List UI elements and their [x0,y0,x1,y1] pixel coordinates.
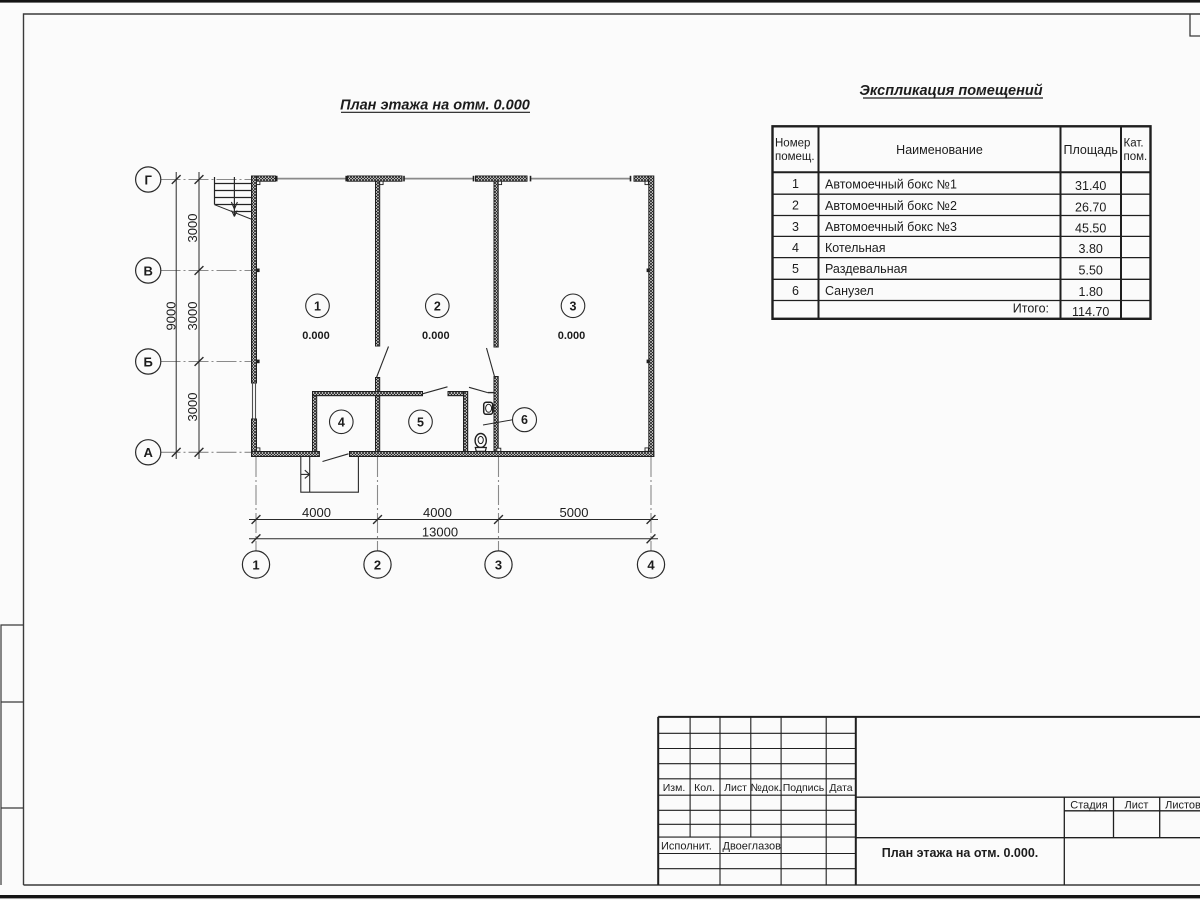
svg-text:0.000: 0.000 [302,330,330,342]
svg-text:Двоеглазов: Двоеглазов [723,841,782,853]
svg-text:Итого:: Итого: [1013,302,1049,316]
svg-text:9000: 9000 [164,302,179,331]
svg-text:6: 6 [792,284,799,298]
svg-text:3000: 3000 [185,302,200,331]
svg-text:4: 4 [647,557,655,572]
svg-text:1: 1 [792,177,799,191]
svg-text:Кол.: Кол. [694,782,715,794]
svg-text:пом.: пом. [1124,151,1148,163]
svg-text:3: 3 [792,220,799,234]
svg-text:45.50: 45.50 [1075,222,1106,236]
svg-text:5: 5 [417,415,424,429]
svg-text:26.70: 26.70 [1075,201,1106,215]
svg-text:5.50: 5.50 [1079,264,1103,278]
svg-text:0.000: 0.000 [422,330,450,342]
svg-text:А: А [144,445,154,460]
svg-text:В: В [144,263,153,278]
svg-text:Раздевальная: Раздевальная [825,262,907,276]
svg-text:31.40: 31.40 [1075,179,1106,193]
svg-text:Наименование: Наименование [896,143,983,157]
svg-text:5: 5 [792,262,799,276]
svg-text:Автомоечный бокс №3: Автомоечный бокс №3 [825,220,957,234]
svg-text:Площадь: Площадь [1063,143,1117,157]
svg-text:0.000: 0.000 [558,330,586,342]
svg-text:2: 2 [792,199,799,213]
svg-text:3.80: 3.80 [1079,242,1103,256]
svg-text:Кат.: Кат. [1124,138,1144,150]
svg-text:Листов: Листов [1165,800,1200,812]
svg-text:4: 4 [338,415,345,429]
svg-text:5000: 5000 [560,505,589,520]
svg-text:Б: Б [144,354,153,369]
svg-text:3000: 3000 [185,393,200,422]
svg-text:План этажа на отм. 0.000.: План этажа на отм. 0.000. [882,846,1039,860]
svg-text:Лист: Лист [1125,800,1149,812]
svg-text:1.80: 1.80 [1079,285,1103,299]
svg-text:Стадия: Стадия [1070,800,1108,812]
svg-text:4000: 4000 [302,505,331,520]
svg-text:Котельная: Котельная [825,241,886,255]
svg-text:Дата: Дата [829,782,852,794]
svg-text:помещ.: помещ. [775,151,815,163]
svg-text:6: 6 [521,413,528,427]
svg-text:4000: 4000 [423,505,452,520]
svg-text:3: 3 [570,299,577,313]
svg-text:Автомоечный бокс №2: Автомоечный бокс №2 [825,199,957,213]
svg-text:Автомоечный бокс №1: Автомоечный бокс №1 [825,178,957,192]
svg-text:2: 2 [434,299,441,313]
svg-text:114.70: 114.70 [1072,305,1109,319]
svg-text:1: 1 [314,299,321,313]
svg-text:3: 3 [495,557,502,572]
svg-text:План этажа на отм. 0.000: План этажа на отм. 0.000 [340,98,530,114]
svg-text:Изм.: Изм. [663,782,686,794]
svg-text:Подпись: Подпись [783,782,825,794]
svg-text:№док.: №док. [751,782,782,794]
svg-text:Санузел: Санузел [825,284,874,298]
svg-text:Экспликация помещений: Экспликация помещений [859,83,1042,99]
svg-text:Лист: Лист [724,782,747,794]
svg-text:Номер: Номер [775,138,810,150]
svg-text:Г: Г [145,172,153,187]
svg-text:13000: 13000 [422,525,458,540]
svg-text:3000: 3000 [185,214,200,243]
svg-text:2: 2 [374,557,381,572]
svg-text:4: 4 [792,241,799,255]
svg-text:1: 1 [252,557,259,572]
svg-text:Исполнит.: Исполнит. [661,841,712,853]
